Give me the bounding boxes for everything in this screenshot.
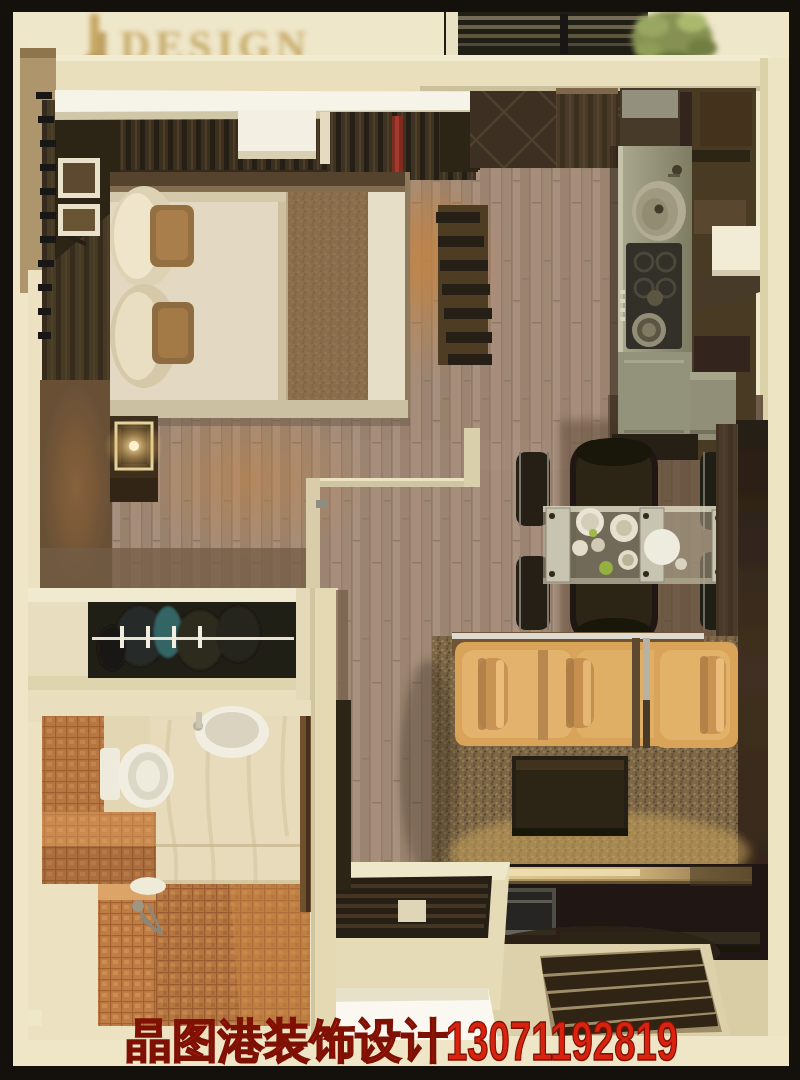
svg-text:13071192819: 13071192819 (446, 1010, 678, 1072)
svg-text:晶图港装饰设计: 晶图港装饰设计 (126, 1014, 448, 1067)
